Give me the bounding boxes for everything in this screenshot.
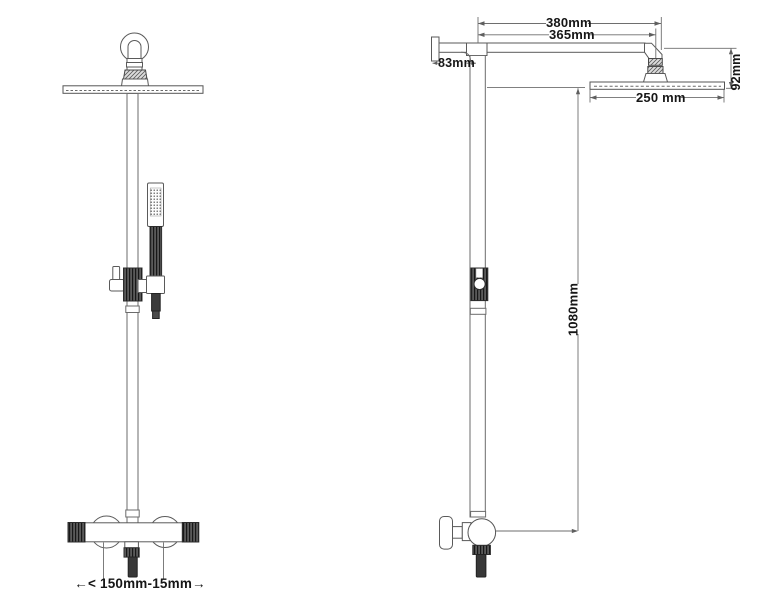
- slider-bracket-front: [110, 267, 143, 302]
- head-connector: [122, 70, 149, 86]
- valve-body: [468, 519, 496, 547]
- arm-tee-fitting: [467, 43, 488, 56]
- hose: [152, 294, 161, 312]
- mixer-valve-front: [68, 516, 199, 577]
- valve-knurled-end-right: [182, 523, 199, 543]
- shower-technical-drawing: 380mm 365mm 83mm 92mm 250 mm 1080mm ←< 1…: [0, 0, 776, 600]
- outlet-handle: [128, 557, 137, 577]
- dim-label-head-width: 250 mm: [636, 91, 681, 104]
- hand-shower-grip: [150, 227, 162, 278]
- hand-shower-spray-face: [150, 188, 161, 216]
- rain-head-front: [63, 86, 203, 94]
- hanger-loop: [121, 33, 149, 70]
- dim-label-column-height: 1080mm: [567, 280, 582, 340]
- pipe-coupling-front-lower: [126, 510, 139, 517]
- wall-plate: [440, 517, 453, 550]
- valve-handle: [476, 555, 486, 578]
- dim-label-arm-length: 365mm: [549, 28, 591, 41]
- dim-label-wall-offset: 83mm: [438, 57, 467, 70]
- side-view: [432, 17, 737, 577]
- pipe-coupling-side-lower: [471, 511, 486, 517]
- outlet-nut: [124, 548, 139, 557]
- dim-label-head-height: 92mm: [730, 49, 744, 95]
- hose-tip: [153, 311, 160, 319]
- hand-shower-holder: [147, 276, 165, 294]
- slider-bracket-side: [471, 268, 488, 301]
- pipe-coupling-side: [470, 308, 486, 314]
- front-view: [63, 33, 203, 579]
- pipe-coupling-front: [126, 306, 139, 313]
- valve-knurled-end-left: [68, 523, 85, 543]
- dim-label-inlet-spacing: ←< 150mm-15mm→: [73, 577, 207, 591]
- rain-head-side: [590, 82, 725, 89]
- mixer-valve-side: [440, 517, 496, 578]
- valve-nut: [473, 545, 491, 554]
